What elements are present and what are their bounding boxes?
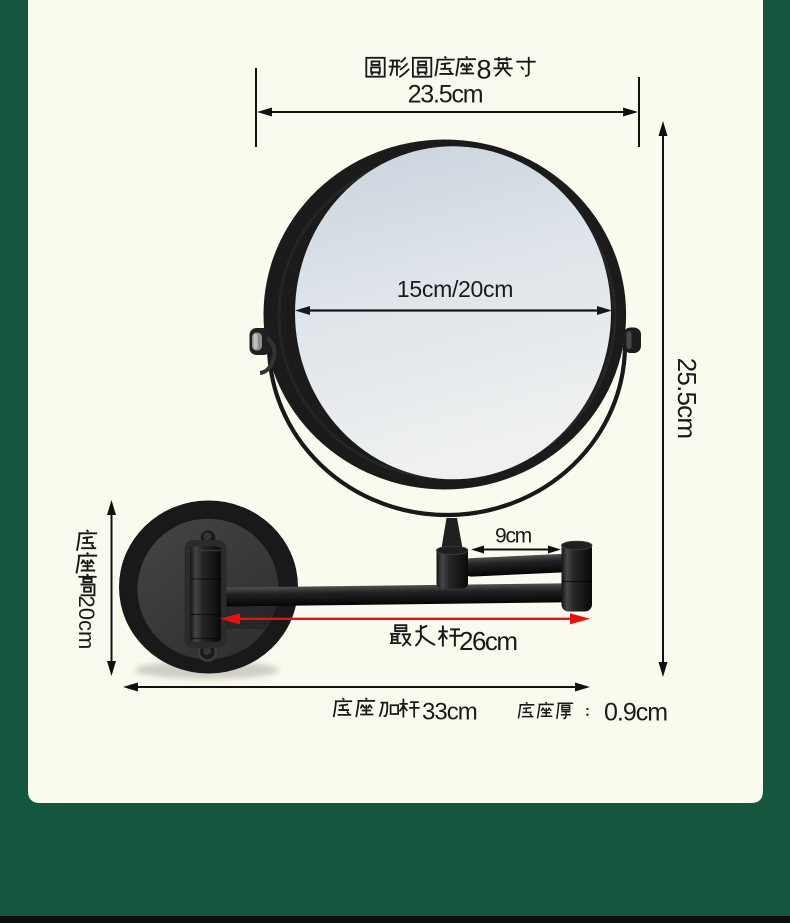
svg-text:20cm: 20cm xyxy=(74,596,99,650)
svg-text:15cm/20cm: 15cm/20cm xyxy=(397,276,513,302)
svg-text:23.5cm: 23.5cm xyxy=(408,81,483,109)
svg-text:0.9cm: 0.9cm xyxy=(604,699,667,727)
svg-text:26cm: 26cm xyxy=(459,626,517,656)
svg-text:25.5cm: 25.5cm xyxy=(672,358,702,438)
svg-text:9cm: 9cm xyxy=(495,525,532,548)
svg-text:33cm: 33cm xyxy=(422,699,477,726)
